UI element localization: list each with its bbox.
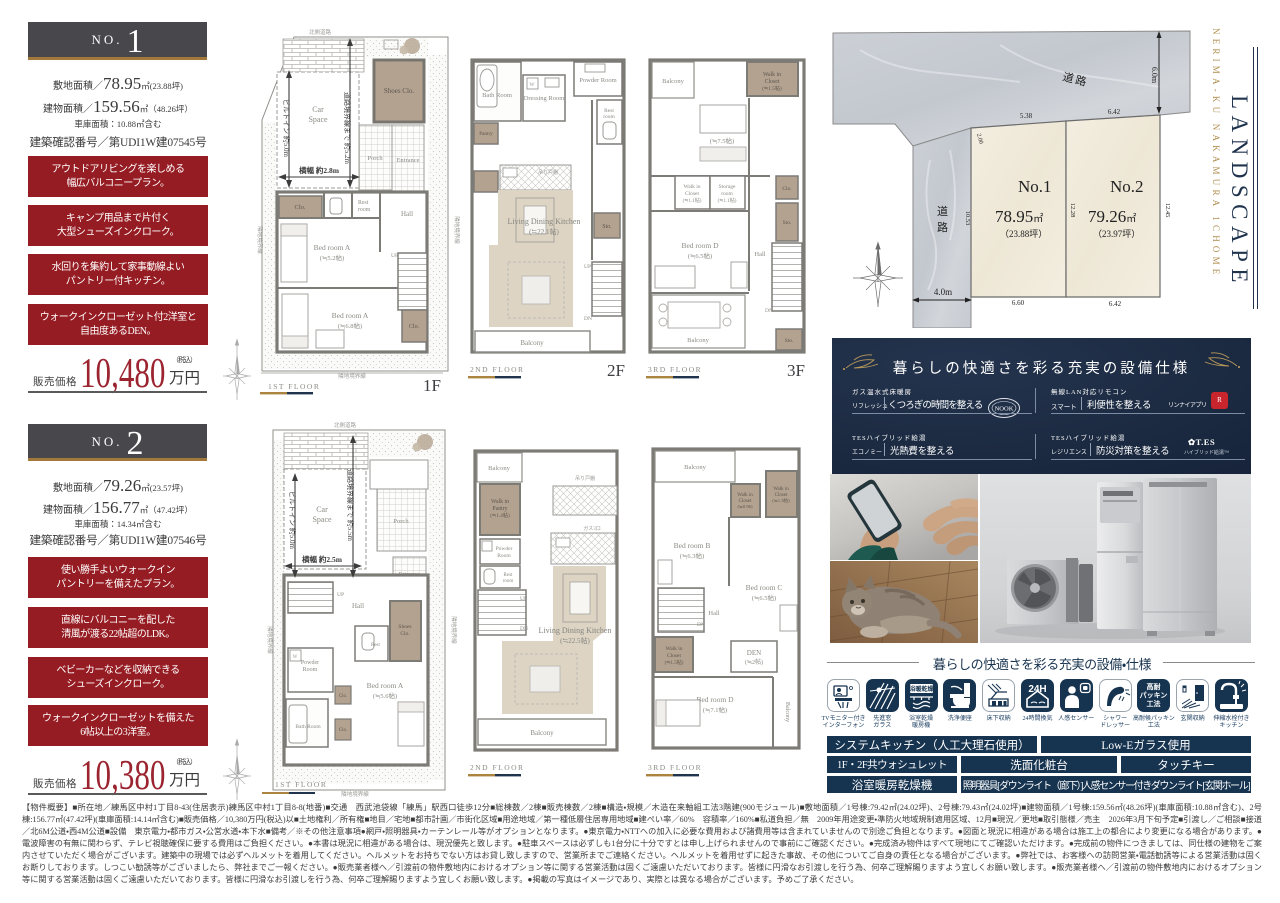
svg-text:room: room: [721, 191, 733, 197]
svg-text:10.53: 10.53: [964, 211, 971, 226]
svg-text:(≒1.5帖): (≒1.5帖): [665, 659, 684, 666]
svg-text:Clo.: Clo.: [339, 728, 347, 733]
svg-text:Porch: Porch: [393, 518, 409, 525]
svg-text:浴暖乾燥: 浴暖乾燥: [909, 685, 934, 693]
svg-text:DN: DN: [765, 308, 773, 314]
svg-text:Balcony: Balcony: [684, 464, 706, 471]
svg-text:Hall: Hall: [708, 610, 719, 617]
svg-text:Shoes Clo.: Shoes Clo.: [384, 87, 415, 95]
svg-text:Walk in: Walk in: [763, 72, 781, 78]
svg-text:Balcony: Balcony: [530, 729, 554, 737]
svg-text:（23.97坪）: （23.97坪）: [1093, 229, 1140, 239]
svg-text:吊り戸棚: 吊り戸棚: [538, 169, 558, 176]
svg-text:No.2: No.2: [1110, 177, 1144, 196]
svg-text:UP: UP: [391, 253, 398, 259]
svg-text:ビルトイン 約5.0m: ビルトイン 約5.0m: [288, 491, 297, 549]
svg-text:北側道路: 北側道路: [334, 421, 357, 429]
svg-text:Hall: Hall: [352, 602, 364, 610]
svg-text:Balcony: Balcony: [662, 78, 684, 85]
svg-text:DEN: DEN: [747, 649, 761, 657]
svg-text:Pantry: Pantry: [492, 506, 507, 512]
svg-text:(≒7.5帖): (≒7.5帖): [710, 136, 734, 145]
svg-text:吊り戸棚: 吊り戸棚: [575, 475, 595, 482]
svg-text:Sto.: Sto.: [783, 220, 792, 226]
svg-text:(≒0.96): (≒0.96): [738, 504, 753, 509]
svg-text:隣地境界線: 隣地境界線: [453, 216, 461, 244]
svg-text:12.28: 12.28: [1069, 203, 1076, 218]
svg-text:路: 路: [937, 221, 948, 234]
svg-text:隣地境界線: 隣地境界線: [341, 790, 369, 798]
svg-text:6.0m: 6.0m: [1150, 67, 1159, 84]
svg-text:(≒6.5帖): (≒6.5帖): [752, 593, 776, 602]
svg-text:ガス3口: ガス3口: [583, 525, 601, 532]
svg-text:パッキン: パッキン: [1140, 691, 1168, 700]
svg-text:(≒1.4帖): (≒1.4帖): [490, 511, 510, 519]
svg-text:6.42: 6.42: [1108, 108, 1121, 116]
svg-text:道路境界線まで 約5.2m: 道路境界線まで 約5.2m: [343, 92, 352, 164]
svg-text:Clo.: Clo.: [294, 204, 305, 211]
svg-text:(≒1.5帖): (≒1.5帖): [762, 84, 782, 92]
svg-text:隣地境界線: 隣地境界線: [450, 616, 458, 644]
svg-text:room: room: [603, 114, 615, 120]
svg-text:UP: UP: [584, 264, 591, 270]
svg-text:隣地境界線: 隣地境界線: [256, 226, 264, 254]
svg-text:Walk in: Walk in: [491, 499, 509, 505]
svg-text:Bed room A: Bed room A: [367, 681, 404, 690]
svg-text:(≒6.3帖): (≒6.3帖): [680, 551, 704, 560]
svg-text:Living Dining Kitchen: Living Dining Kitchen: [508, 217, 581, 226]
svg-text:Clo.: Clo.: [409, 324, 420, 330]
svg-text:Bed room A: Bed room A: [332, 311, 369, 320]
svg-text:Room: Room: [303, 667, 318, 673]
svg-text:Hall: Hall: [401, 210, 413, 218]
svg-text:Car: Car: [316, 505, 328, 514]
svg-text:(≒2帖): (≒2帖): [745, 658, 763, 666]
svg-text:Powder: Powder: [301, 660, 319, 666]
svg-text:Pantry: Pantry: [479, 131, 493, 137]
svg-text:6.42: 6.42: [1109, 300, 1122, 308]
svg-text:6.60: 6.60: [1012, 299, 1025, 307]
svg-text:DN: DN: [584, 316, 592, 322]
svg-text:room: room: [503, 579, 514, 584]
svg-text:3RD FLOOR: 3RD FLOOR: [648, 763, 702, 772]
svg-text:Entrance: Entrance: [396, 157, 419, 164]
svg-text:(≒5.6帖): (≒5.6帖): [373, 691, 397, 700]
svg-text:(≒22.5帖): (≒22.5帖): [560, 636, 590, 645]
svg-text:横幅 約2.8m: 横幅 約2.8m: [299, 165, 340, 175]
svg-text:Space: Space: [312, 515, 332, 524]
svg-text:2ND FLOOR: 2ND FLOOR: [470, 365, 525, 374]
svg-text:(≒1.3帖): (≒1.3帖): [772, 497, 790, 504]
svg-text:(≒22.1帖): (≒22.1帖): [529, 227, 559, 236]
svg-text:Balcony: Balcony: [520, 339, 544, 347]
svg-text:横幅 約2.5m: 横幅 約2.5m: [302, 554, 343, 564]
svg-text:Clo.: Clo.: [400, 631, 410, 637]
svg-text:No.1: No.1: [1018, 177, 1052, 196]
svg-text:Hall: Hall: [754, 251, 765, 258]
svg-text:Bed room D: Bed room D: [681, 241, 719, 250]
svg-text:DN: DN: [520, 626, 528, 632]
svg-text:Bed room D: Bed room D: [696, 695, 734, 704]
svg-text:Rest: Rest: [358, 200, 369, 206]
svg-text:3F: 3F: [787, 361, 805, 380]
svg-text:Clo.: Clo.: [782, 186, 792, 192]
svg-text:(≒5.2帖): (≒5.2帖): [320, 253, 344, 262]
svg-text:Dressing Room: Dressing Room: [524, 95, 565, 102]
svg-text:高耐: 高耐: [1147, 682, 1161, 691]
svg-text:UP: UP: [520, 596, 527, 602]
svg-text:4.0m: 4.0m: [934, 287, 952, 297]
svg-text:12.45: 12.45: [1164, 203, 1171, 218]
svg-text:Walk in: Walk in: [665, 646, 682, 652]
svg-text:道路境界線まで 約5.5m: 道路境界線まで 約5.5m: [346, 469, 355, 541]
svg-text:3RD FLOOR: 3RD FLOOR: [648, 365, 702, 374]
svg-text:(≒1.1帖): (≒1.1帖): [718, 197, 737, 204]
svg-text:Car: Car: [312, 105, 324, 114]
svg-text:Balcony: Balcony: [687, 337, 709, 344]
svg-text:(≒6.8帖): (≒6.8帖): [338, 321, 362, 330]
svg-text:Balcony: Balcony: [784, 702, 790, 722]
svg-text:24H: 24H: [1028, 684, 1046, 695]
svg-text:Shoes: Shoes: [398, 624, 411, 630]
svg-text:Walk in: Walk in: [683, 184, 700, 190]
svg-text:Room: Room: [497, 553, 511, 559]
svg-text:Bath Room: Bath Room: [295, 724, 321, 730]
svg-text:2F: 2F: [607, 361, 625, 380]
svg-text:(≒7.1帖): (≒7.1帖): [703, 705, 727, 714]
svg-text:Storage: Storage: [719, 184, 736, 190]
svg-text:UP: UP: [337, 592, 344, 598]
svg-text:W: W: [293, 655, 298, 660]
svg-text:W: W: [529, 82, 535, 88]
svg-text:Walk in: Walk in: [737, 493, 753, 498]
svg-text:Sto.: Sto.: [602, 224, 612, 230]
svg-text:1ST FLOOR: 1ST FLOOR: [268, 382, 320, 391]
svg-text:Bath Room: Bath Room: [482, 92, 512, 99]
svg-text:Bed room B: Bed room B: [674, 541, 711, 550]
svg-text:Porch: Porch: [367, 155, 383, 162]
svg-text:（23.88坪）: （23.88坪）: [1000, 229, 1047, 239]
svg-text:Powder Room: Powder Room: [579, 77, 616, 84]
svg-text:Sto.: Sto.: [785, 338, 794, 344]
svg-text:ビルトイン 約5.0m: ビルトイン 約5.0m: [282, 99, 291, 157]
svg-text:5.38: 5.38: [1020, 112, 1033, 120]
svg-text:(≒1.1帖): (≒1.1帖): [683, 197, 702, 204]
svg-text:Space: Space: [308, 115, 328, 124]
svg-text:Rest: Rest: [371, 643, 381, 648]
svg-text:Walk in: Walk in: [773, 487, 789, 492]
svg-text:Bed room C: Bed room C: [746, 583, 783, 592]
svg-text:北側道路: 北側道路: [309, 28, 332, 36]
svg-text:Balcony: Balcony: [488, 465, 510, 472]
svg-text:Living Dining Kitchen: Living Dining Kitchen: [539, 626, 612, 635]
svg-text:Powder: Powder: [496, 546, 513, 552]
svg-text:工法: 工法: [1147, 699, 1161, 708]
svg-text:Clo.: Clo.: [339, 694, 347, 699]
svg-text:Closet: Closet: [765, 79, 780, 85]
svg-text:1F: 1F: [423, 376, 441, 395]
svg-text:2ND FLOOR: 2ND FLOOR: [470, 763, 525, 772]
svg-text:DN: DN: [697, 622, 705, 628]
svg-text:room: room: [358, 207, 371, 213]
svg-text:(≒6.5帖): (≒6.5帖): [688, 251, 712, 260]
svg-text:Closet: Closet: [685, 191, 700, 197]
svg-text:NOOK: NOOK: [995, 406, 1014, 413]
svg-text:隣地境界線: 隣地境界線: [266, 626, 274, 654]
svg-text:Bed room A: Bed room A: [314, 243, 351, 252]
svg-text:Rest: Rest: [504, 573, 514, 578]
svg-text:道: 道: [937, 204, 948, 218]
svg-text:Closet: Closet: [667, 653, 682, 659]
